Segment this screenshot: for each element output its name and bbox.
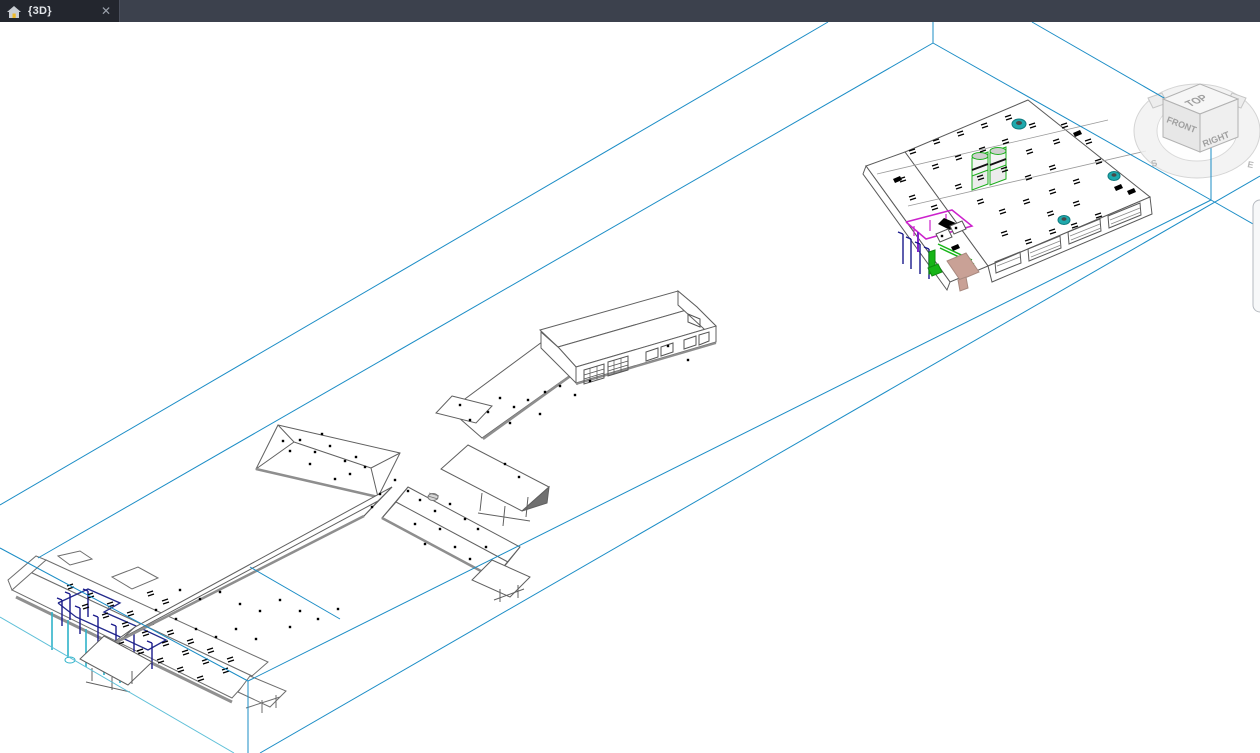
right-dock-ramp-foot bbox=[958, 277, 968, 291]
right-edge-panel[interactable] bbox=[1253, 200, 1260, 312]
3d-view-canvas[interactable]: SETOPFRONTRIGHT bbox=[0, 0, 1260, 753]
view-tab-bar: {3D} ✕ bbox=[0, 0, 1260, 22]
right-rtu-teal-3-cap bbox=[1062, 217, 1067, 221]
right-tank-1-cap bbox=[972, 153, 988, 160]
section-box-edge-7[interactable] bbox=[248, 200, 1211, 681]
view-tab-label: {3D} bbox=[28, 5, 95, 17]
left-roof-bump bbox=[58, 551, 92, 565]
view-tab-3d[interactable]: {3D} ✕ bbox=[0, 0, 120, 22]
home-icon[interactable] bbox=[6, 4, 22, 19]
section-box-edge-1[interactable] bbox=[0, 22, 828, 505]
close-icon[interactable]: ✕ bbox=[99, 5, 113, 17]
viewcube-compass-e[interactable]: E bbox=[1247, 159, 1255, 170]
right-rtu-teal-1-cap bbox=[1016, 121, 1022, 125]
right-tank-2-cap bbox=[990, 148, 1006, 155]
left-dormer bbox=[112, 567, 158, 589]
section-box-edge-11[interactable] bbox=[260, 176, 1260, 753]
section-box-edge-13[interactable] bbox=[250, 567, 340, 619]
right-rtu-teal-2-cap bbox=[1112, 173, 1117, 177]
mid-roof-dots bbox=[155, 345, 689, 640]
